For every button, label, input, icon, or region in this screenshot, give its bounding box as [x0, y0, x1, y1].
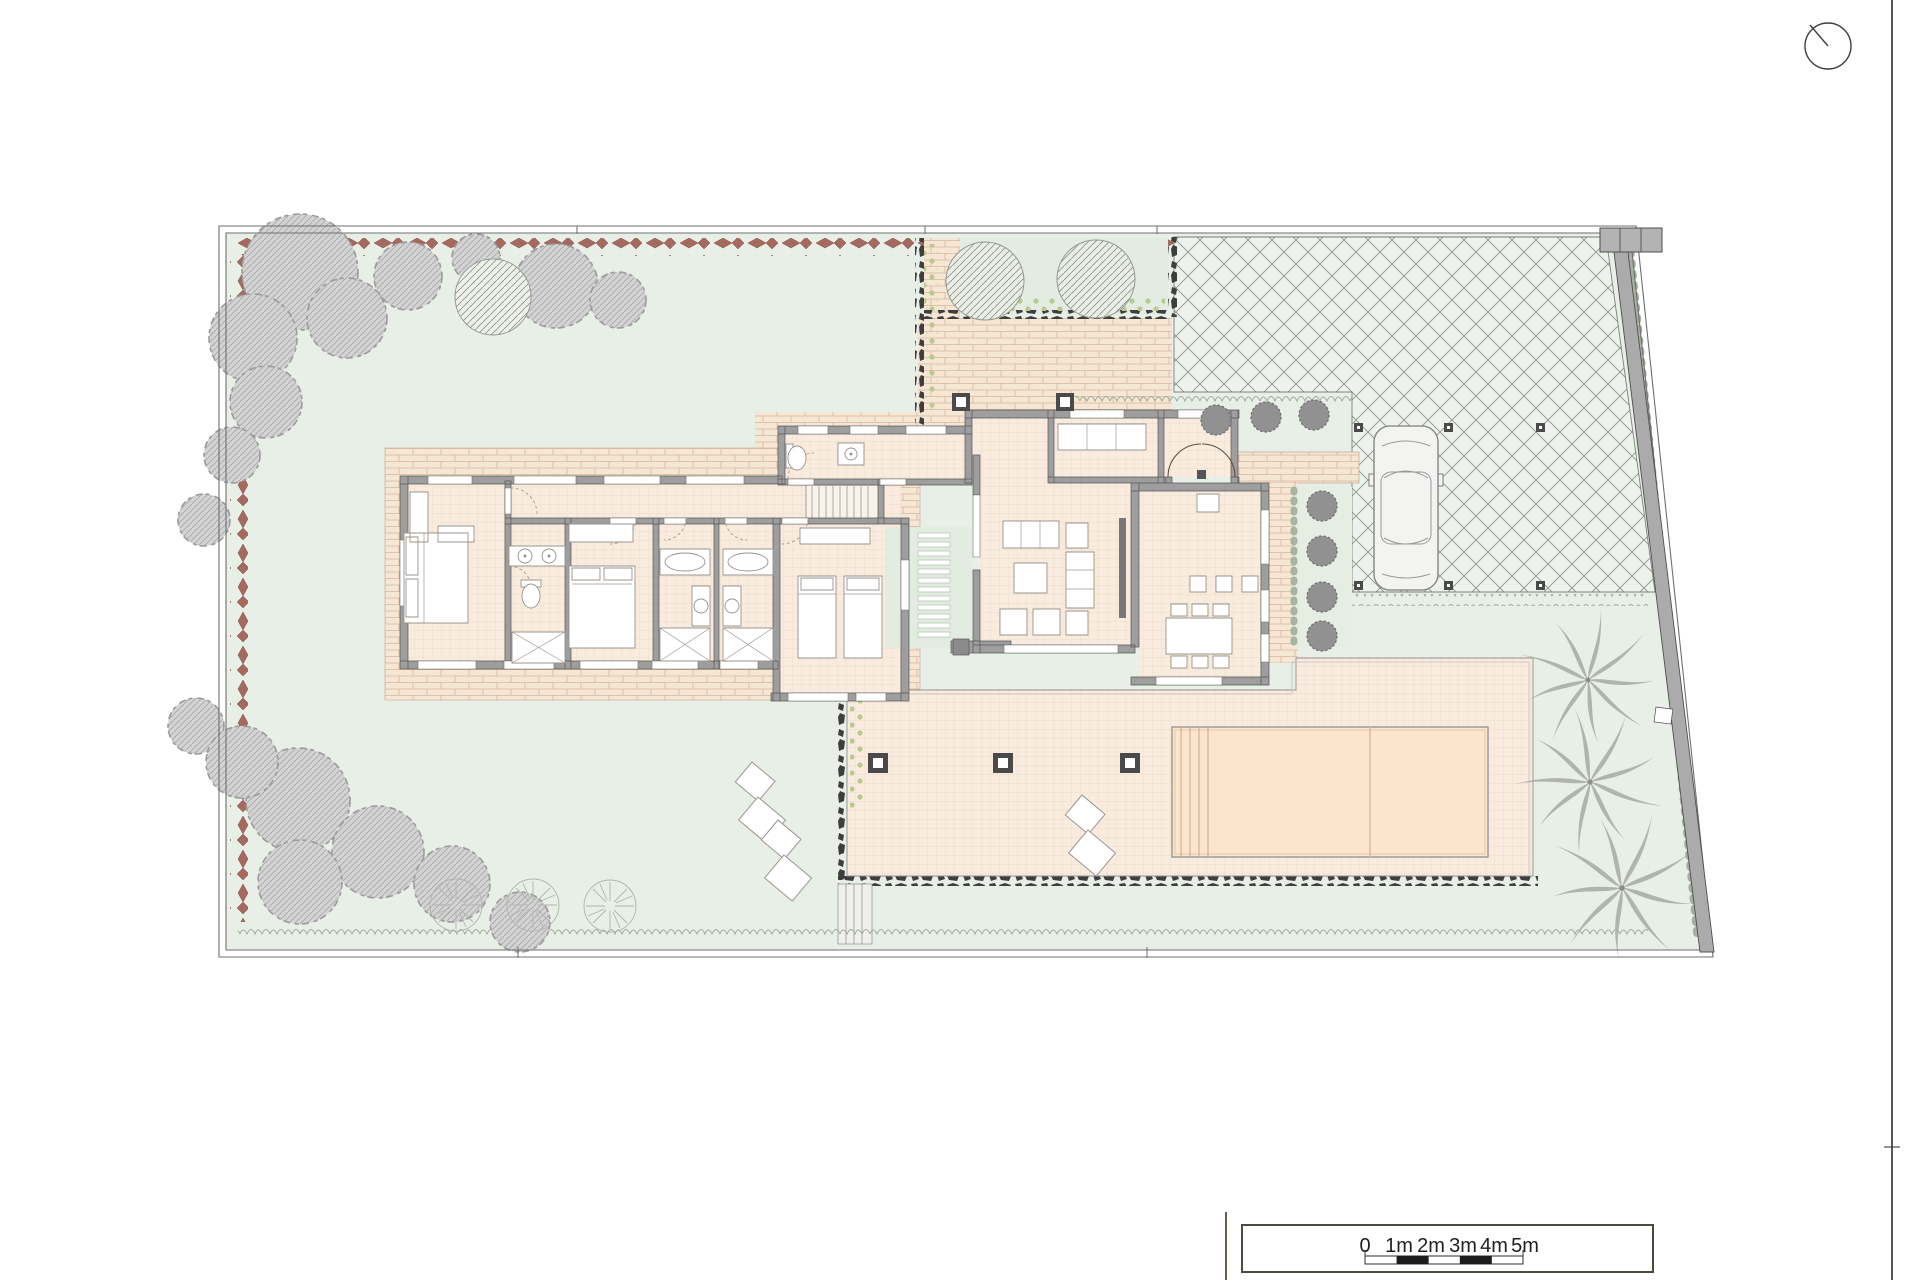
floor-plan-canvas: 0 1m 2m 3m 4m 5m [0, 0, 1920, 1280]
staircase [806, 485, 880, 523]
stone-col-patch-east [1168, 237, 1177, 317]
stone-row-terrace-south [838, 876, 1538, 886]
car [1369, 426, 1443, 590]
chimney-wall [1119, 518, 1126, 618]
entry-path-brick [1233, 452, 1359, 483]
courtyard-corner-post [953, 639, 969, 655]
stone-col-terrace-west [838, 688, 847, 880]
scale-label-3m: 3m [1449, 1235, 1477, 1257]
scale-bar: 0 1m 2m 3m 4m 5m [1242, 1225, 1653, 1272]
scale-label-5m: 5m [1511, 1235, 1539, 1257]
inner-courtyard [885, 527, 972, 648]
east-wall-gate [1654, 707, 1673, 724]
scale-bar-box [1242, 1225, 1653, 1272]
north-arrow-circle-icon [1805, 23, 1851, 69]
stone-col-patch-west [915, 238, 924, 428]
drawing-sheet: 0 1m 2m 3m 4m 5m [0, 0, 1920, 1280]
scale-label-2m: 2m [1417, 1235, 1445, 1257]
scale-label-1m: 1m [1385, 1235, 1413, 1257]
swimming-pool [1172, 727, 1488, 857]
scale-label-4m: 4m [1480, 1235, 1508, 1257]
entrance-gate [1600, 228, 1662, 252]
